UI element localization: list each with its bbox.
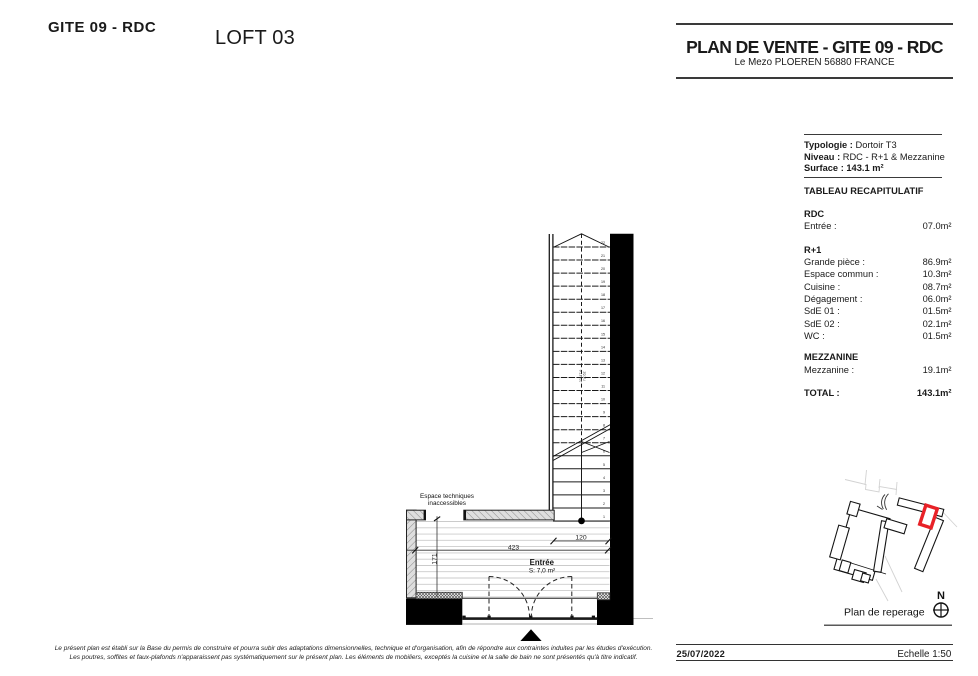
svg-text:16: 16 bbox=[601, 319, 605, 323]
svg-text:h2.62: h2.62 bbox=[583, 372, 587, 381]
svg-text:Plan de reperage: Plan de reperage bbox=[844, 607, 925, 619]
svg-text:10: 10 bbox=[601, 398, 605, 402]
svg-text:Entrée: Entrée bbox=[530, 558, 555, 567]
svg-text:14: 14 bbox=[601, 345, 605, 349]
svg-text:15: 15 bbox=[601, 332, 605, 336]
svg-text:423: 423 bbox=[508, 544, 520, 551]
svg-text:4: 4 bbox=[603, 476, 605, 480]
svg-text:19: 19 bbox=[601, 280, 605, 284]
svg-text:21: 21 bbox=[601, 254, 605, 258]
svg-text:12: 12 bbox=[601, 371, 605, 375]
svg-text:inaccessibles: inaccessibles bbox=[428, 500, 466, 507]
svg-text:8: 8 bbox=[603, 424, 605, 428]
svg-text:S: 7,0 m²: S: 7,0 m² bbox=[529, 568, 556, 575]
svg-text:2: 2 bbox=[603, 502, 605, 506]
svg-text:9: 9 bbox=[603, 411, 605, 415]
svg-text:5: 5 bbox=[603, 463, 605, 467]
svg-text:3: 3 bbox=[603, 489, 605, 493]
svg-text:N: N bbox=[937, 590, 945, 602]
svg-text:Espace techniques: Espace techniques bbox=[420, 493, 474, 500]
svg-text:120: 120 bbox=[575, 535, 587, 542]
svg-text:20: 20 bbox=[601, 267, 605, 271]
svg-text:17: 17 bbox=[601, 306, 605, 310]
svg-text:13: 13 bbox=[601, 358, 605, 362]
svg-text:18: 18 bbox=[601, 293, 605, 297]
svg-text:7: 7 bbox=[603, 437, 605, 441]
svg-text:171: 171 bbox=[432, 553, 439, 565]
svg-text:11: 11 bbox=[601, 385, 605, 389]
svg-text:1: 1 bbox=[603, 515, 605, 519]
